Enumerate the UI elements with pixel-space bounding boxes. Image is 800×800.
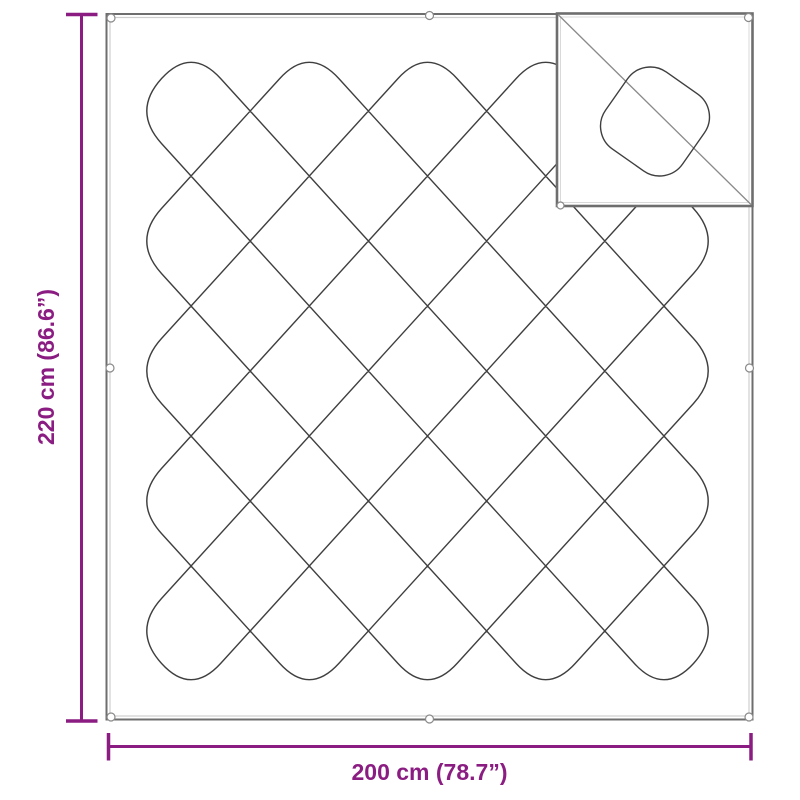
- grommet: [107, 14, 115, 22]
- grommet: [745, 14, 753, 22]
- grommet: [426, 12, 434, 20]
- width-dimension-label: 200 cm (78.7”): [352, 759, 508, 785]
- grommet: [426, 715, 434, 723]
- grommet: [107, 713, 115, 721]
- detail-inset: [557, 14, 753, 210]
- product-dimension-diagram: 220 cm (86.6”) 200 cm (78.7”): [0, 0, 800, 800]
- inset-grommet: [557, 202, 564, 209]
- grommet: [745, 713, 753, 721]
- grommet: [746, 364, 754, 372]
- grommet: [106, 364, 114, 372]
- diagram-canvas: 220 cm (86.6”) 200 cm (78.7”): [0, 0, 800, 800]
- height-dimension-label: 220 cm (86.6”): [33, 289, 59, 445]
